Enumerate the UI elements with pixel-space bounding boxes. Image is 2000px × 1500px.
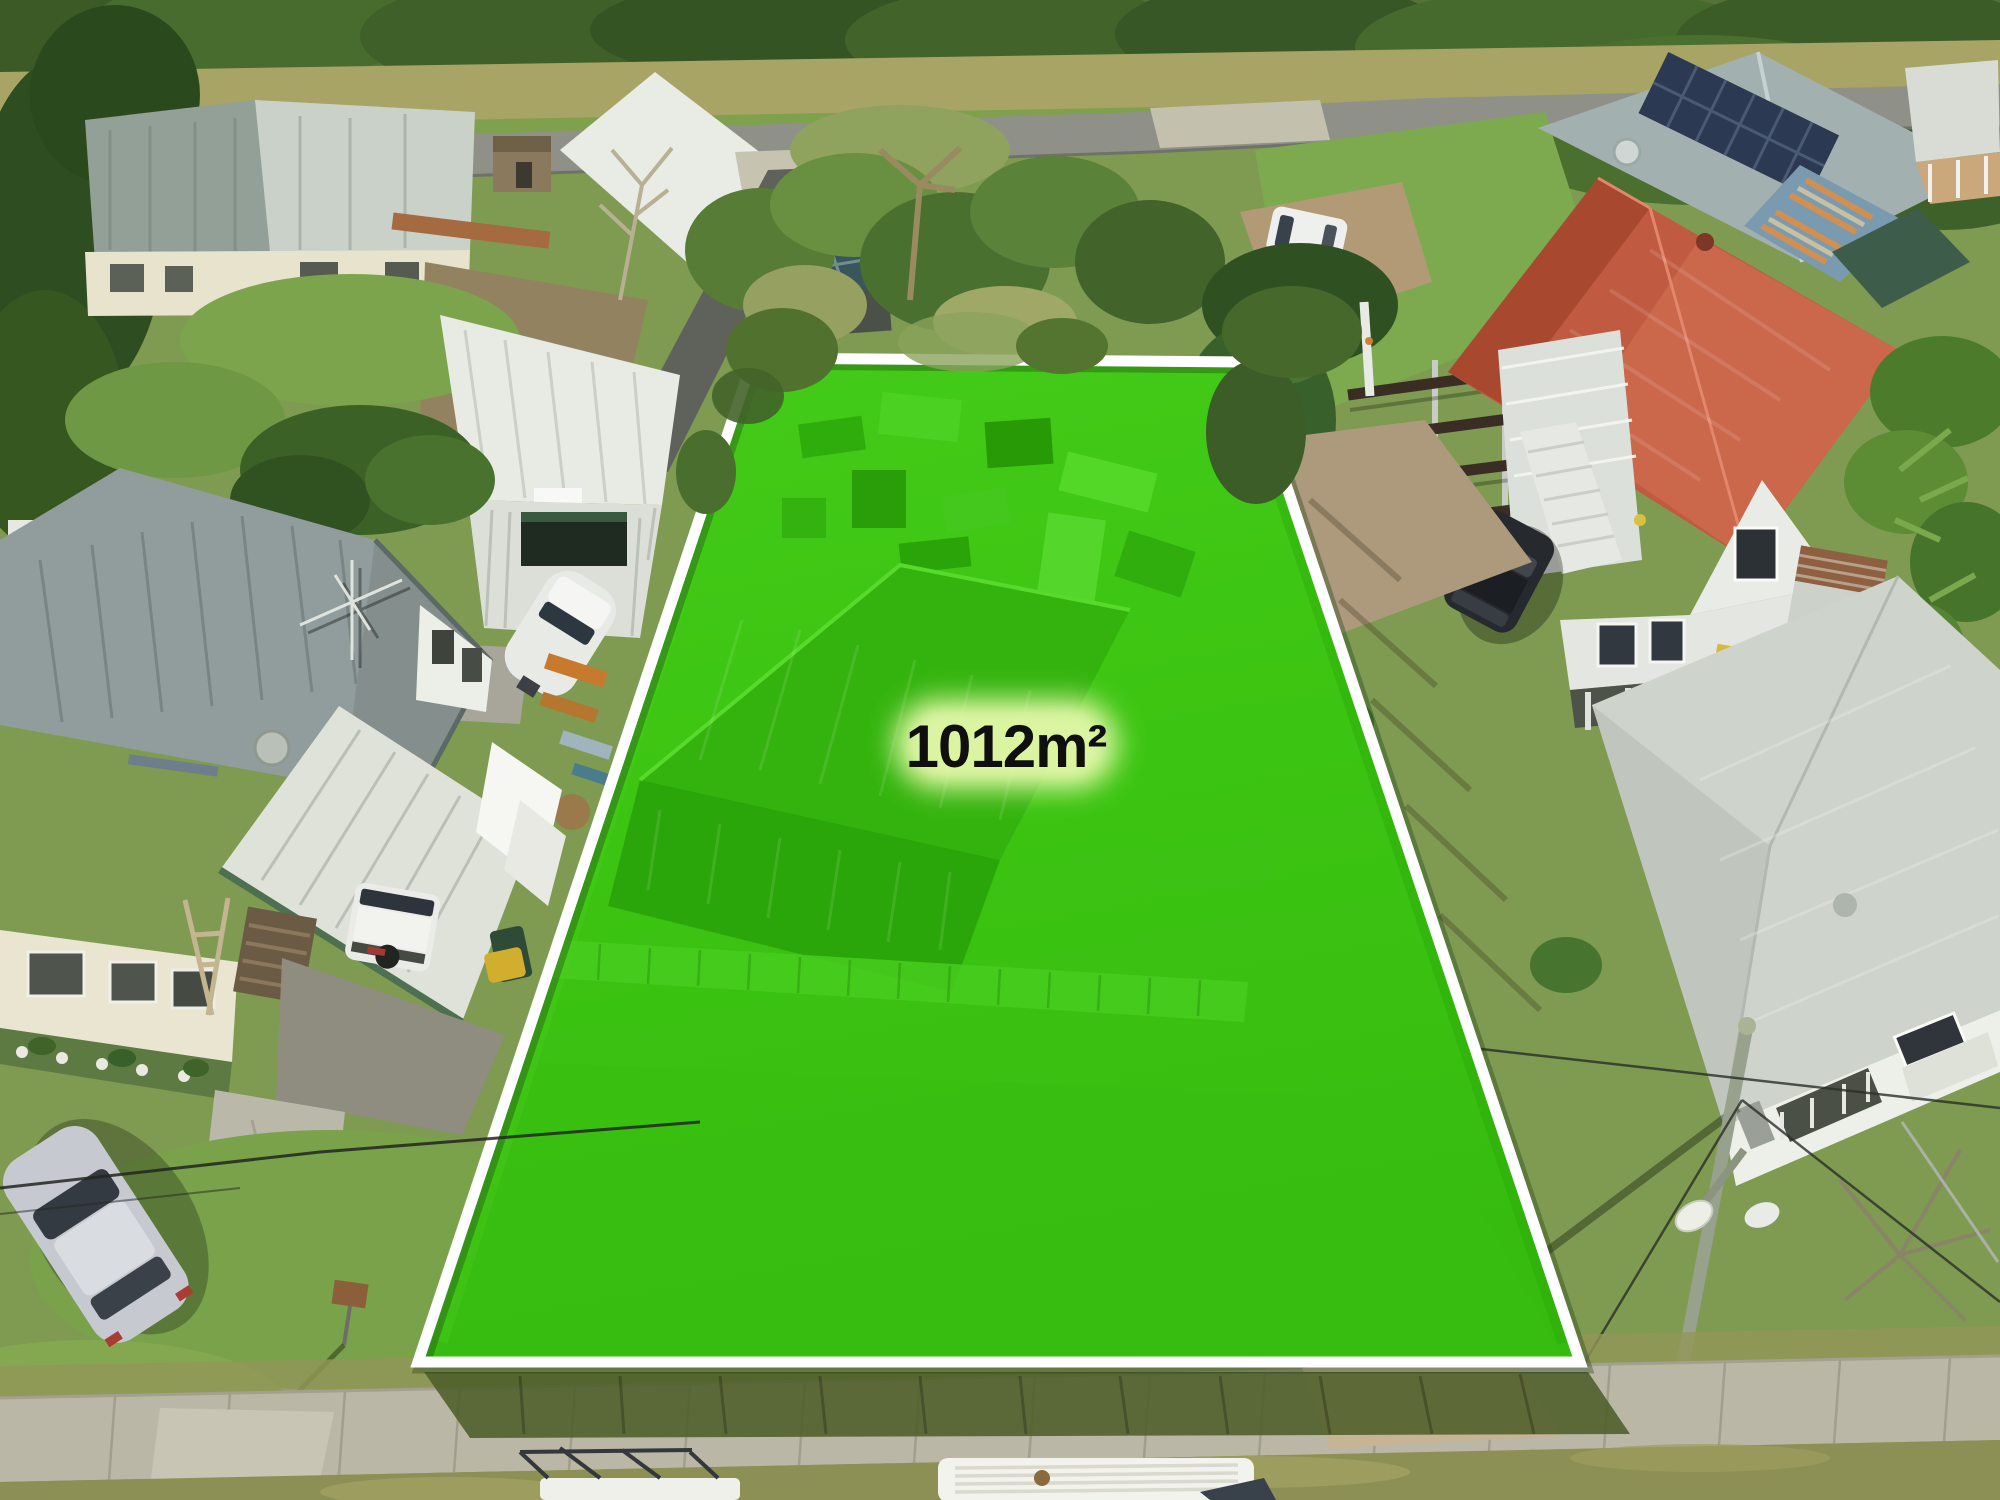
lot-area-text: 1012m²: [906, 713, 1107, 780]
white-van: [938, 1458, 1276, 1500]
satellite-dish: [1614, 139, 1640, 165]
area-label: 1012m²: [893, 698, 1119, 790]
aerial-property-photo: 1012m²: [0, 0, 2000, 1500]
window: [165, 266, 193, 292]
roof-vent: [1833, 893, 1857, 917]
hut-door: [516, 162, 532, 188]
window: [110, 264, 144, 292]
photo-canvas: 1012m²: [0, 0, 2000, 1500]
brick-hut: [493, 136, 551, 192]
window: [462, 648, 482, 682]
satellite-dish: [255, 731, 289, 765]
fence-shadow-band: [424, 1372, 1630, 1438]
hip-roof: [85, 100, 270, 262]
bush: [1530, 937, 1602, 993]
window: [1650, 620, 1684, 662]
garage-opening: [521, 522, 627, 566]
window: [432, 630, 454, 664]
window: [28, 952, 84, 996]
top-footpath-segment: [1150, 100, 1330, 148]
window: [110, 962, 156, 1002]
roof-vent: [1696, 233, 1714, 251]
gable-window: [1735, 528, 1777, 580]
window: [1598, 624, 1636, 666]
